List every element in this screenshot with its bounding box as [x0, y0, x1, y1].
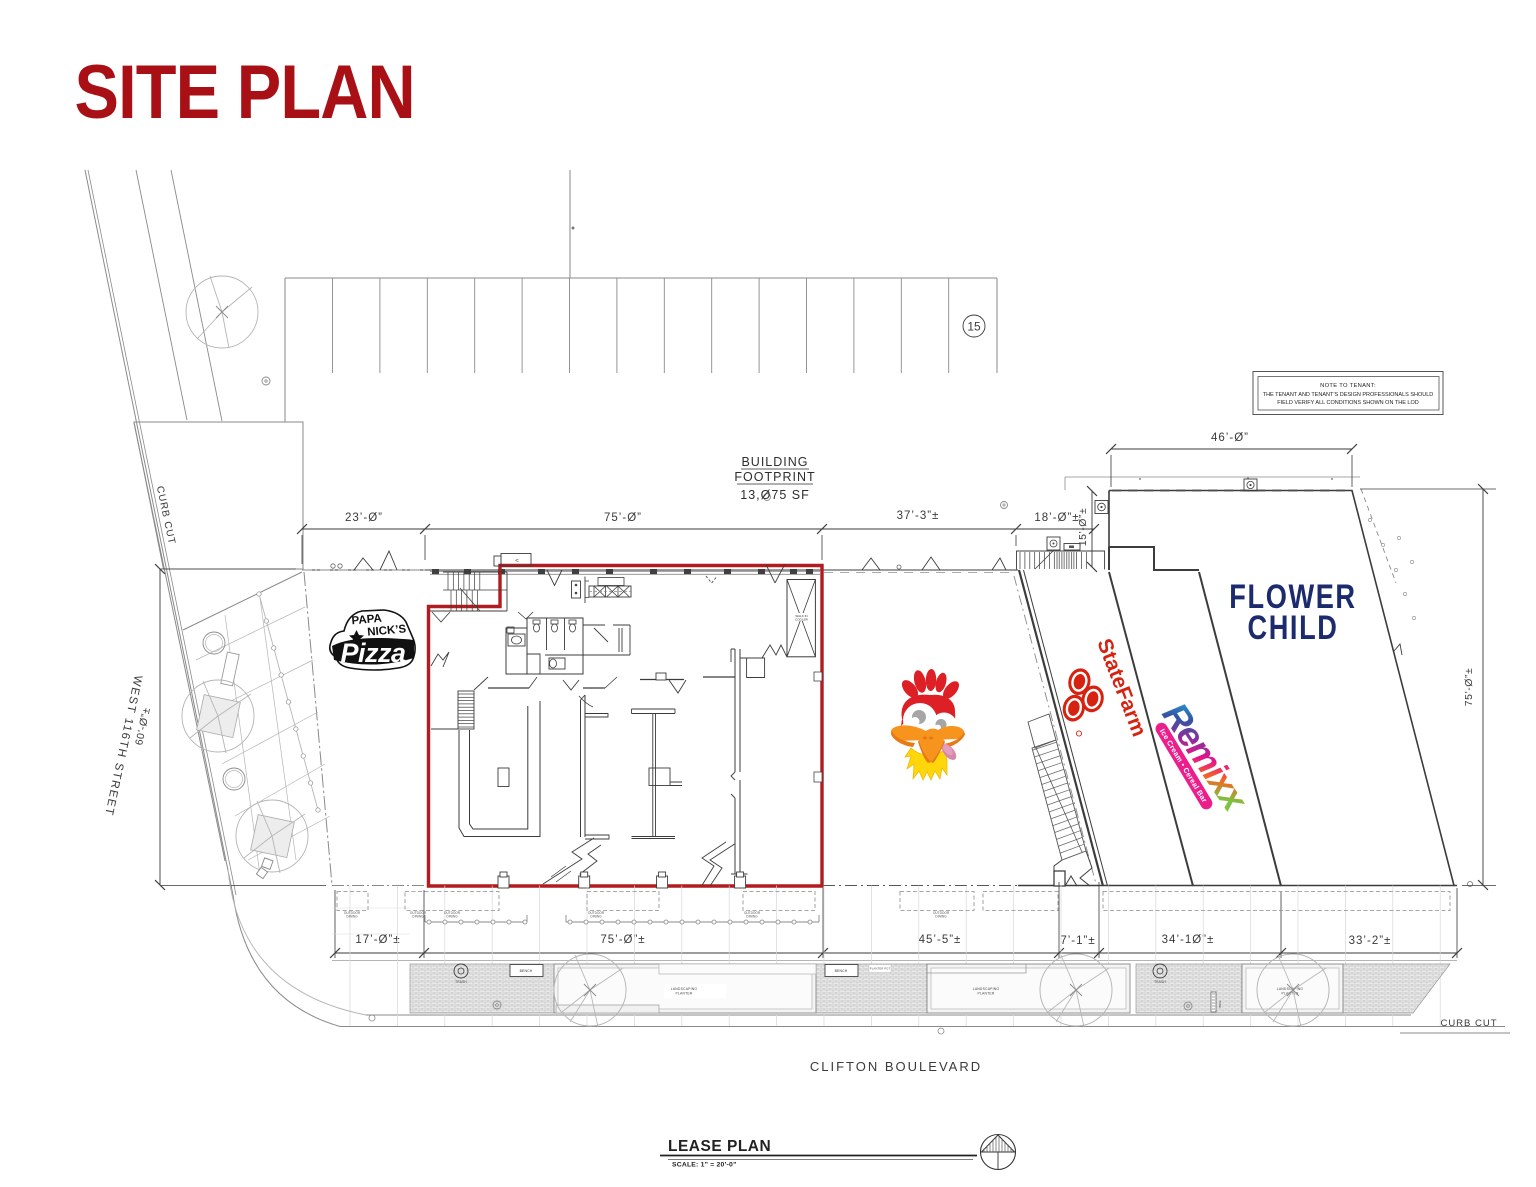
svg-text:PLANTER: PLANTER — [977, 992, 994, 996]
svg-text:DINING: DINING — [935, 915, 947, 919]
svg-text:SITE PLAN: SITE PLAN — [75, 50, 415, 135]
svg-text:LANDSCAPING: LANDSCAPING — [973, 987, 1000, 991]
svg-text:NOTE TO TENANT:: NOTE TO TENANT: — [1320, 383, 1376, 389]
svg-text:33’-2”±: 33’-2”± — [1349, 935, 1392, 947]
svg-text:17’-Ø”±: 17’-Ø”± — [355, 934, 400, 946]
svg-text:COOLER: COOLER — [795, 618, 809, 622]
svg-text:PLANTER POT: PLANTER POT — [870, 967, 891, 971]
svg-text:CHILD: CHILD — [1247, 608, 1338, 647]
svg-text:TRASH: TRASH — [1154, 980, 1166, 984]
svg-text:DINING: DINING — [746, 915, 758, 919]
svg-text:BENCH: BENCH — [520, 969, 533, 973]
svg-text:<: < — [515, 559, 519, 565]
svg-text:75’-Ø”±: 75’-Ø”± — [600, 934, 645, 946]
svg-text:CURB CUT: CURB CUT — [1440, 1018, 1497, 1029]
svg-text:LEASE PLAN: LEASE PLAN — [668, 1138, 771, 1155]
svg-text:SCALE: 1” = 20’-0”: SCALE: 1” = 20’-0” — [672, 1162, 737, 1169]
svg-text:PLANTER: PLANTER — [675, 992, 692, 996]
svg-text:37’-3”±: 37’-3”± — [897, 510, 940, 522]
svg-text:DINING: DINING — [446, 915, 458, 919]
svg-text:TRASH: TRASH — [455, 980, 467, 984]
svg-text:7’-1”±: 7’-1”± — [1060, 935, 1095, 947]
svg-text:DINING: DINING — [412, 915, 424, 919]
svg-text:DINING: DINING — [346, 915, 358, 919]
svg-text:75’-Ø”: 75’-Ø” — [604, 512, 642, 524]
svg-text:13,Ø75 SF: 13,Ø75 SF — [740, 488, 809, 502]
svg-text:BUILDING: BUILDING — [741, 455, 808, 469]
svg-text:34’-1Ø”±: 34’-1Ø”± — [1162, 934, 1215, 946]
svg-text:75’-Ø”±: 75’-Ø”± — [1463, 668, 1475, 706]
svg-text:45’-5”±: 45’-5”± — [919, 934, 962, 946]
svg-text:15: 15 — [967, 320, 981, 334]
svg-text:DINING: DINING — [590, 915, 602, 919]
svg-text:FIELD VERIFY ALL CONDITIONS SH: FIELD VERIFY ALL CONDITIONS SHOWN ON THE… — [1277, 400, 1418, 406]
svg-text:Pizza: Pizza — [340, 638, 406, 668]
svg-text:18’-Ø”±: 18’-Ø”± — [1034, 512, 1079, 524]
svg-text:15’-Ø”±: 15’-Ø”± — [1077, 508, 1089, 546]
svg-text:BIKE: BIKE — [1218, 1000, 1222, 1007]
svg-text:BENCH: BENCH — [835, 969, 848, 973]
svg-text:THE TENANT AND TENANT’S DESIGN: THE TENANT AND TENANT’S DESIGN PROFESSIO… — [1263, 392, 1434, 398]
svg-text:46’-Ø”: 46’-Ø” — [1211, 432, 1249, 444]
svg-text:CLIFTON BOULEVARD: CLIFTON BOULEVARD — [810, 1059, 982, 1074]
svg-text:LANDSCAPING: LANDSCAPING — [671, 987, 698, 991]
svg-text:FOOTPRINT: FOOTPRINT — [734, 470, 815, 484]
svg-text:23’-Ø”: 23’-Ø” — [345, 512, 383, 524]
